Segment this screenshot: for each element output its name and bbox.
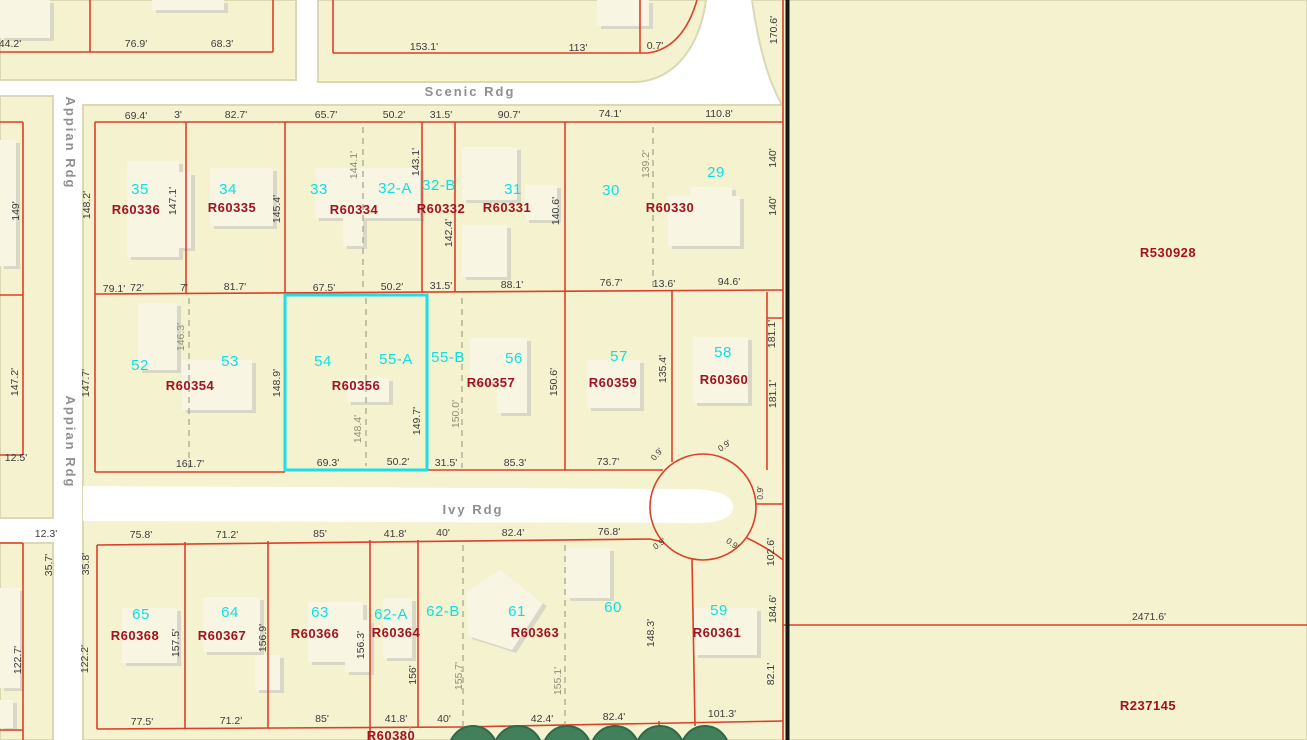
dimension-label: 157.5' (170, 629, 182, 657)
dimension-label: 42.4' (531, 713, 553, 725)
dimension-label: 135.4' (657, 355, 669, 383)
dimension-label: 81.7' (224, 281, 246, 293)
parcel-id: R60335 (208, 200, 257, 215)
dimension-label: 94.6' (718, 276, 740, 288)
lot-number: 60 (604, 599, 622, 616)
lot-number: 34 (219, 181, 237, 198)
parcel-id: R60332 (417, 201, 466, 216)
dimension-label: 181.1' (766, 320, 778, 348)
lot-number: 52 (131, 357, 149, 374)
lot-number: 33 (310, 181, 328, 198)
parcel-id: R60336 (112, 202, 161, 217)
lot-number: 63 (311, 604, 329, 621)
dimension-label: 13.6' (653, 278, 675, 290)
dimension-label: 50.2' (381, 281, 403, 293)
lot-number: 32-B (422, 177, 456, 194)
parcel-id: R530928 (1140, 245, 1196, 260)
lot-number: 55-A (379, 351, 413, 368)
dimension-label: 170.6' (768, 16, 780, 44)
parcel-id: R237145 (1120, 698, 1176, 713)
dimension-label: 65.7' (315, 109, 337, 121)
dimension-label: 12.3' (35, 528, 57, 540)
dimension-label: 2471.6' (1132, 611, 1166, 623)
parcel-map-canvas[interactable]: Scenic RdgIvy RdgAppian RdgAppian Rdg353… (0, 0, 1307, 740)
dimension-label: 146.3' (175, 323, 187, 351)
dimension-label: 150.0' (450, 400, 462, 428)
dimension-label: 76.9' (125, 38, 147, 50)
dimension-label: 3' (174, 109, 182, 121)
dimension-label: 156' (407, 665, 419, 685)
dimension-label: 71.2' (216, 529, 238, 541)
lot-number: 32-A (378, 180, 412, 197)
dimension-label: 82.4' (502, 527, 524, 539)
dimension-label: 113' (569, 42, 588, 54)
dimension-label: 110.8' (705, 108, 733, 120)
parcel-id: R60354 (166, 378, 215, 393)
parcel-id: R60360 (700, 372, 749, 387)
dimension-label: 102.6' (765, 538, 777, 566)
parcel-id: R60366 (291, 626, 340, 641)
lot-number: 29 (707, 164, 725, 181)
dimension-label: 155.1' (552, 667, 564, 695)
dimension-label: 31.5' (435, 457, 457, 469)
lot-number: 62-A (374, 606, 408, 623)
parcel-id: R60361 (693, 625, 742, 640)
dimension-label: 156.9' (257, 624, 269, 652)
street-name-label: Appian Rdg (63, 396, 78, 489)
dimension-label: 41.8' (384, 528, 406, 540)
dimension-label: 140' (767, 148, 779, 168)
dimension-label: 67.5' (313, 282, 335, 294)
parcel-id: R60356 (332, 378, 381, 393)
dimension-label: 156.3' (355, 631, 367, 659)
dimension-label: 140.6' (550, 197, 562, 225)
dimension-label: 147.7' (80, 369, 92, 397)
parcel-id: R60330 (646, 200, 695, 215)
dimension-label: 35.8' (80, 553, 92, 575)
dimension-label: 148.3' (645, 619, 657, 647)
parcel-id: R60368 (111, 628, 160, 643)
dimension-label: 68.3' (211, 38, 233, 50)
parcel-id: R60367 (198, 628, 247, 643)
dimension-label: 149.7' (411, 407, 423, 435)
lot-number: 31 (504, 181, 522, 198)
dimension-label: 0.7' (647, 40, 664, 52)
dimension-label: 44.2' (0, 38, 21, 50)
parcel-id: R60334 (330, 202, 379, 217)
lot-number: 54 (314, 353, 332, 370)
parcel-id: R60357 (467, 375, 516, 390)
dimension-label: 122.2' (79, 645, 91, 673)
dimension-label: 139.2' (640, 150, 652, 178)
dimension-label: 148.2' (81, 191, 93, 219)
dimension-label: 41.8' (385, 713, 407, 725)
dimension-label: 147.1' (167, 187, 179, 215)
dimension-label: 73.7' (597, 456, 619, 468)
dimension-label: 122.7' (12, 646, 24, 674)
dimension-label: 85' (315, 713, 329, 725)
dimension-label: 31.5' (430, 109, 452, 121)
dimension-label: 150.6' (548, 368, 560, 396)
dimension-label: 88.1' (501, 279, 523, 291)
dimension-label: 90.7' (498, 109, 520, 121)
lot-number: 58 (714, 344, 732, 361)
dimension-label: 153.1' (410, 41, 438, 53)
parcel-id: R60363 (511, 625, 560, 640)
dimension-label: 71.2' (220, 715, 242, 727)
dimension-label: 140' (767, 196, 779, 216)
lot-number: 35 (131, 181, 149, 198)
lot-number: 53 (221, 353, 239, 370)
dimension-label: 101.3' (708, 708, 736, 720)
dimension-label: 77.5' (131, 716, 153, 728)
street-name-label: Ivy Rdg (443, 502, 504, 517)
block-east-large-parcel (783, 0, 1307, 740)
lot-number: 55-B (431, 349, 465, 366)
dimension-label: 142.4' (443, 219, 455, 247)
dimension-label: 35.7' (43, 554, 55, 576)
dimension-label: 148.4' (352, 415, 364, 443)
ivy-rdg-road (83, 486, 733, 523)
dimension-label: 72' (130, 282, 144, 294)
dimension-label: 144.1' (348, 151, 360, 179)
dimension-label: 76.8' (598, 526, 620, 538)
dimension-label: 161.7' (176, 458, 204, 470)
dimension-label: 143.1' (410, 148, 422, 176)
dimension-label: 79.1' (103, 283, 125, 295)
dimension-label: 85' (313, 528, 327, 540)
roads (83, 486, 733, 523)
dimension-label: 145.4' (271, 195, 283, 223)
street-name-label: Scenic Rdg (425, 84, 516, 99)
parcel-id: R60331 (483, 200, 532, 215)
map-viewport[interactable]: Scenic RdgIvy RdgAppian RdgAppian Rdg353… (0, 0, 1307, 740)
dimension-label: 147.2' (9, 368, 21, 396)
dimension-label: 181.1' (767, 380, 779, 408)
lot-number: 57 (610, 348, 628, 365)
lot-number: 61 (508, 603, 526, 620)
lot-number: 56 (505, 350, 523, 367)
dimension-label: 7' (180, 282, 188, 294)
street-name-label: Appian Rdg (63, 97, 78, 190)
parcel-id: R60364 (372, 625, 421, 640)
dimension-label: 148.9' (271, 369, 283, 397)
dimension-label: 85.3' (504, 457, 526, 469)
dimension-label: 74.1' (599, 108, 621, 120)
lot-number: 65 (132, 606, 150, 623)
dimension-label: 75.8' (130, 529, 152, 541)
dimension-label: 40' (436, 527, 450, 539)
lot-number: 62-B (426, 603, 460, 620)
dimension-label: 69.3' (317, 457, 339, 469)
dimension-label: 0.9' (755, 486, 765, 500)
dimension-label: 184.6' (767, 595, 779, 623)
dimension-label: 82.7' (225, 109, 247, 121)
dimension-label: 12.5' (5, 452, 27, 464)
dimension-label: 149' (10, 201, 22, 221)
lot-number: 59 (710, 602, 728, 619)
dimension-label: 82.4' (603, 711, 625, 723)
dimension-label: 40' (437, 713, 451, 725)
dimension-label: 31.5' (430, 280, 452, 292)
dimension-label: 76.7' (600, 277, 622, 289)
dimension-label: 155.7' (453, 662, 465, 690)
dimension-label: 69.4' (125, 110, 147, 122)
lot-number: 30 (602, 182, 620, 199)
dimension-label: 82.1' (765, 663, 777, 685)
parcel-id: R60380 (367, 728, 416, 740)
dimension-label: 50.2' (383, 109, 405, 121)
dimension-label: 50.2' (387, 456, 409, 468)
lot-number: 64 (221, 604, 239, 621)
parcel-id: R60359 (589, 375, 638, 390)
